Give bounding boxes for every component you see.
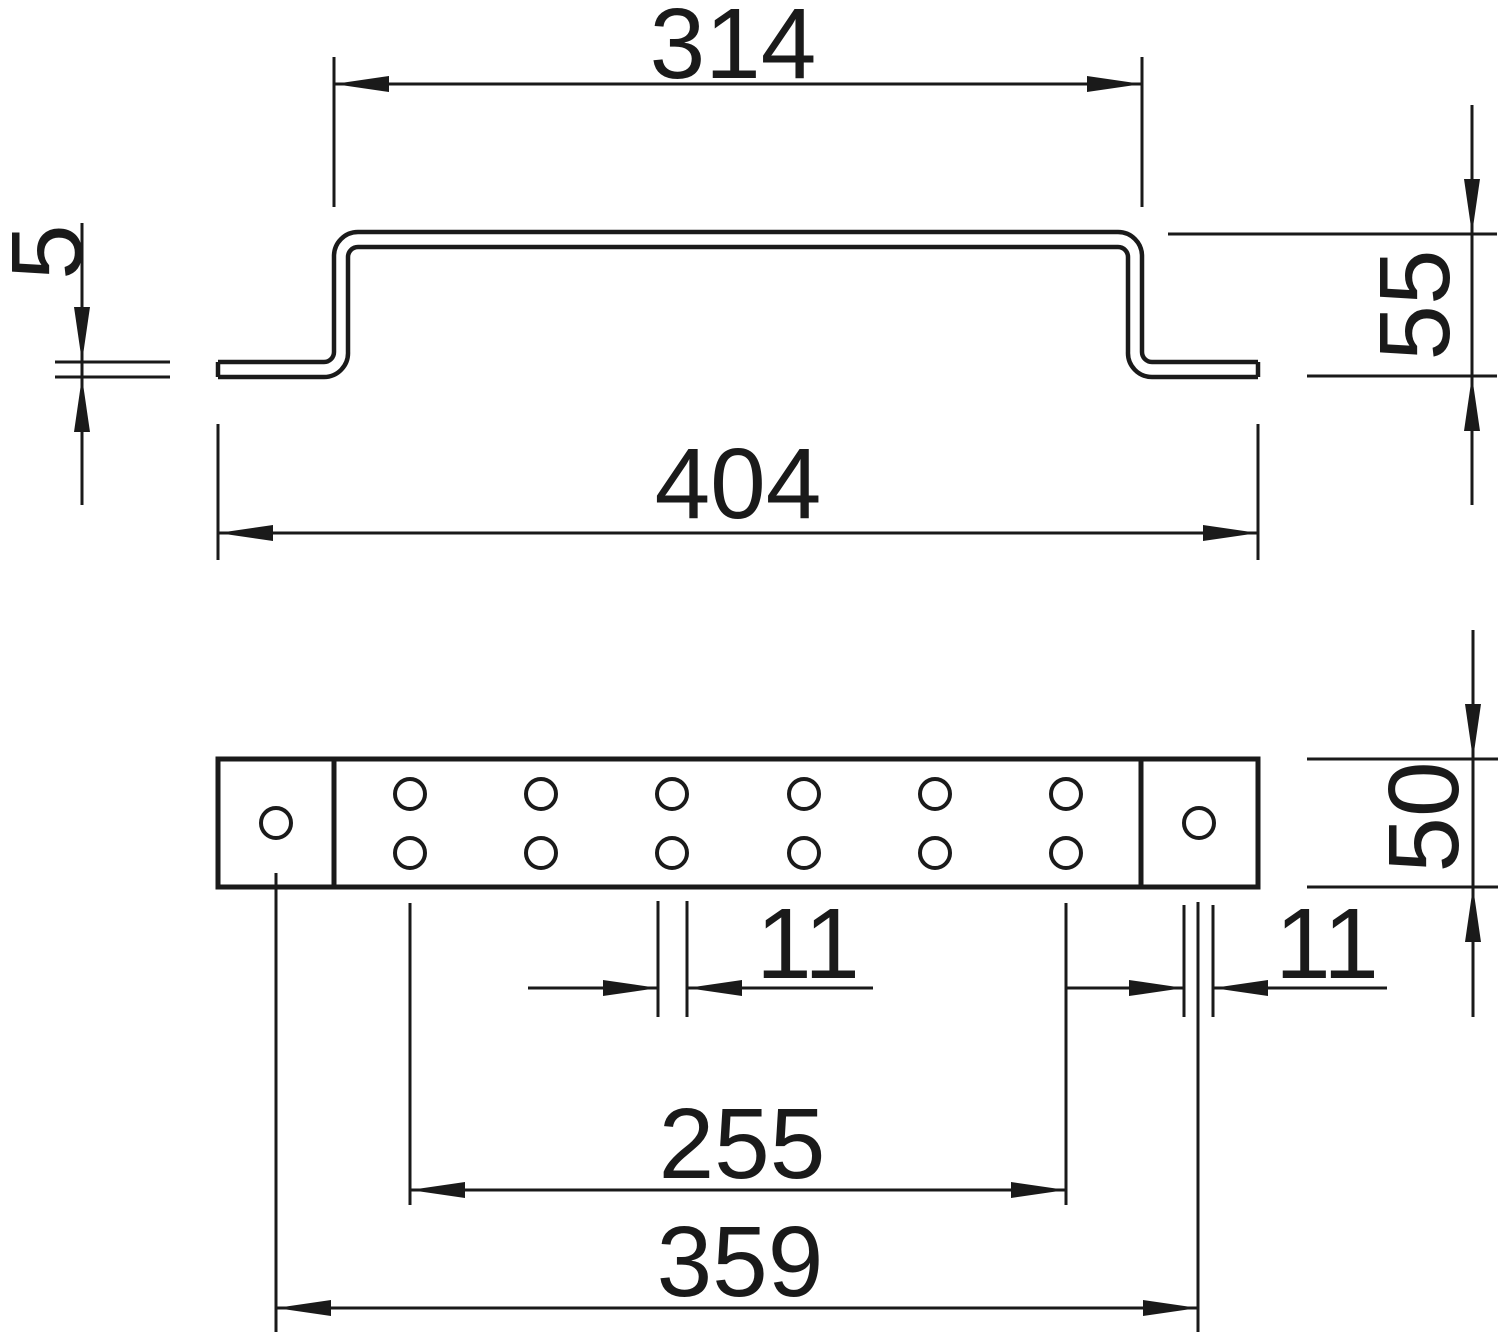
hole	[395, 779, 425, 809]
dimension-overall-width: 404	[218, 424, 1258, 560]
arrow-left-icon	[410, 1182, 465, 1198]
arrow-right-icon	[1087, 76, 1142, 92]
hole	[526, 779, 556, 809]
hole	[526, 838, 556, 868]
hole	[657, 779, 687, 809]
hole	[920, 779, 950, 809]
dimension-end-hole-span-label: 359	[657, 1206, 824, 1318]
hole	[395, 838, 425, 868]
dimension-thickness-label: 5	[0, 224, 103, 280]
arrow-right-icon	[1129, 980, 1184, 996]
dimension-paired-hole-span: 255	[410, 903, 1066, 1205]
plan-bar-outline	[218, 759, 1258, 887]
dimension-overall-width-label: 404	[655, 428, 822, 540]
arrow-left-icon	[276, 1300, 331, 1316]
hole	[1051, 838, 1081, 868]
dimension-hole-diameter-middle: 11	[528, 888, 873, 1017]
arrow-down-icon	[1465, 704, 1481, 759]
dimension-hole-diameter-end: 11	[1067, 888, 1387, 1017]
dimension-height: 55	[1168, 105, 1497, 505]
dimension-material-thickness: 5	[0, 223, 170, 505]
profile-view	[218, 232, 1258, 377]
arrow-up-icon	[1464, 376, 1480, 431]
arrow-left-icon	[687, 980, 742, 996]
end-hole-left	[261, 808, 291, 838]
arrow-left-icon	[218, 525, 273, 541]
hole	[920, 838, 950, 868]
arrow-up-icon	[1465, 887, 1481, 942]
arrow-down-icon	[1464, 179, 1480, 234]
dimension-hole-diameter-middle-label: 11	[756, 888, 860, 1000]
dimension-top-width: 314	[334, 0, 1142, 207]
hole	[789, 838, 819, 868]
hole	[657, 838, 687, 868]
arrow-left-icon	[1213, 980, 1268, 996]
arrow-right-icon	[1011, 1182, 1066, 1198]
profile-upper-surface-line	[218, 232, 1258, 362]
profile-lower-surface-line	[218, 247, 1258, 377]
arrow-right-icon	[603, 980, 658, 996]
dimension-top-width-label: 314	[650, 0, 817, 100]
paired-holes	[395, 779, 1081, 868]
plan-view	[218, 759, 1258, 887]
arrow-down-icon	[74, 307, 90, 362]
drawing-svg: 314 5 55 404	[0, 0, 1500, 1338]
hole	[1051, 779, 1081, 809]
dimension-paired-hole-span-label: 255	[659, 1088, 826, 1200]
technical-drawing-canvas: 314 5 55 404	[0, 0, 1500, 1338]
arrow-left-icon	[334, 76, 389, 92]
arrow-right-icon	[1203, 525, 1258, 541]
arrow-up-icon	[74, 377, 90, 432]
dimension-hole-diameter-end-label: 11	[1275, 888, 1379, 1000]
hole	[789, 779, 819, 809]
dimension-bar-width-label: 50	[1368, 761, 1480, 872]
dimension-height-label: 55	[1359, 249, 1471, 360]
arrow-right-icon	[1143, 1300, 1198, 1316]
end-hole-right	[1184, 808, 1214, 838]
